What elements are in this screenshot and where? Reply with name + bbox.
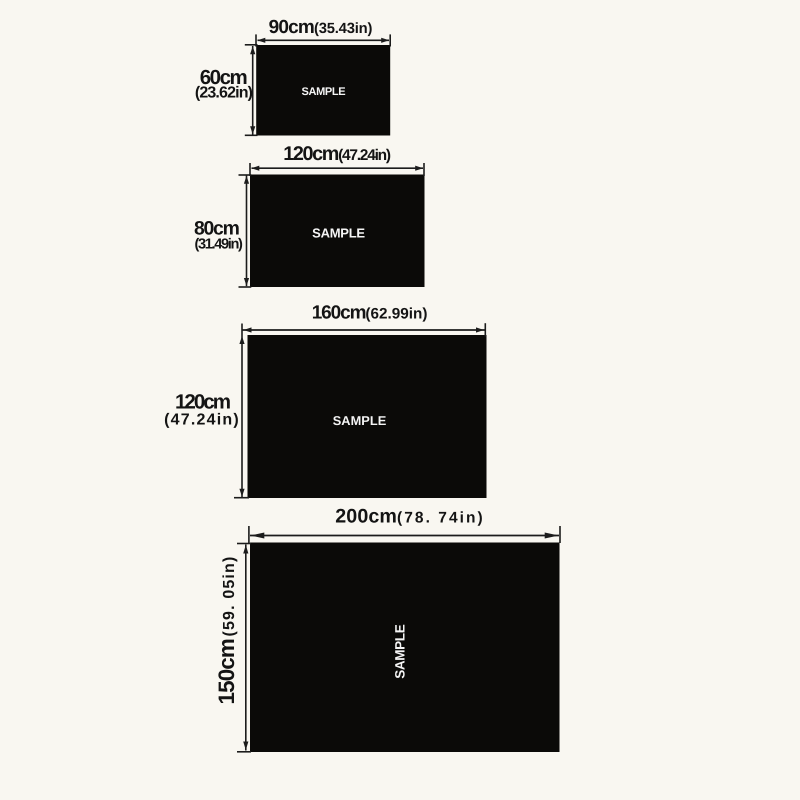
svg-text:120cm(47.24in): 120cm(47.24in): [283, 143, 391, 165]
svg-text:SAMPLE: SAMPLE: [312, 226, 365, 241]
svg-text:150cm: 150cm: [214, 639, 239, 704]
svg-text:160cm(62.99in): 160cm(62.99in): [312, 303, 428, 324]
svg-text:(59. 05in): (59. 05in): [221, 556, 238, 637]
svg-text:(23.62in): (23.62in): [195, 85, 253, 102]
svg-text:SAMPLE: SAMPLE: [393, 624, 408, 679]
svg-text:120cm: 120cm: [175, 391, 231, 414]
svg-text:SAMPLE: SAMPLE: [333, 413, 387, 428]
svg-text:90cm(35.43in): 90cm(35.43in): [269, 17, 373, 38]
svg-text:(31.49in): (31.49in): [194, 236, 243, 252]
svg-text:SAMPLE: SAMPLE: [302, 86, 346, 98]
svg-text:200cm(78. 74in): 200cm(78. 74in): [335, 506, 485, 528]
svg-text:(47.24in): (47.24in): [164, 412, 240, 429]
